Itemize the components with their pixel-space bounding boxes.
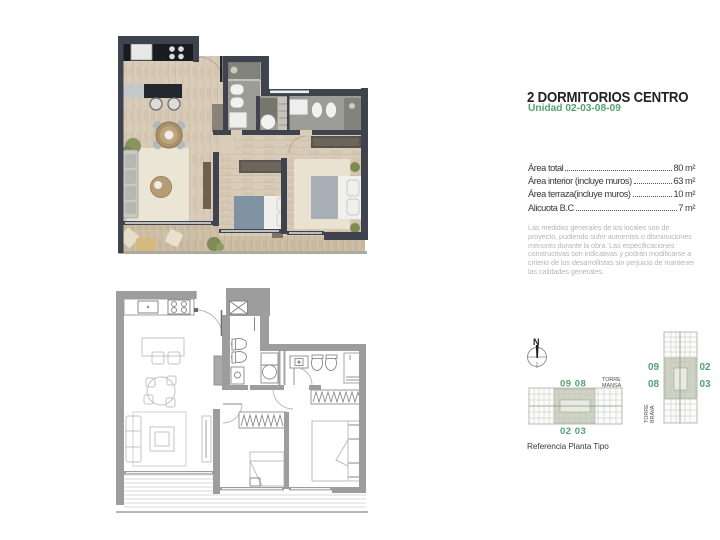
svg-text:03: 03 [700,379,712,390]
svg-text:09: 09 [648,362,660,373]
svg-text:02: 02 [700,362,712,373]
svg-text:BRAVA: BRAVA [650,405,656,423]
svg-text:09 08: 09 08 [560,379,586,390]
svg-text:02 03: 02 03 [560,426,586,437]
svg-text:MANSA: MANSA [602,383,622,389]
svg-text:08: 08 [648,379,660,390]
svg-text:N: N [533,337,540,347]
